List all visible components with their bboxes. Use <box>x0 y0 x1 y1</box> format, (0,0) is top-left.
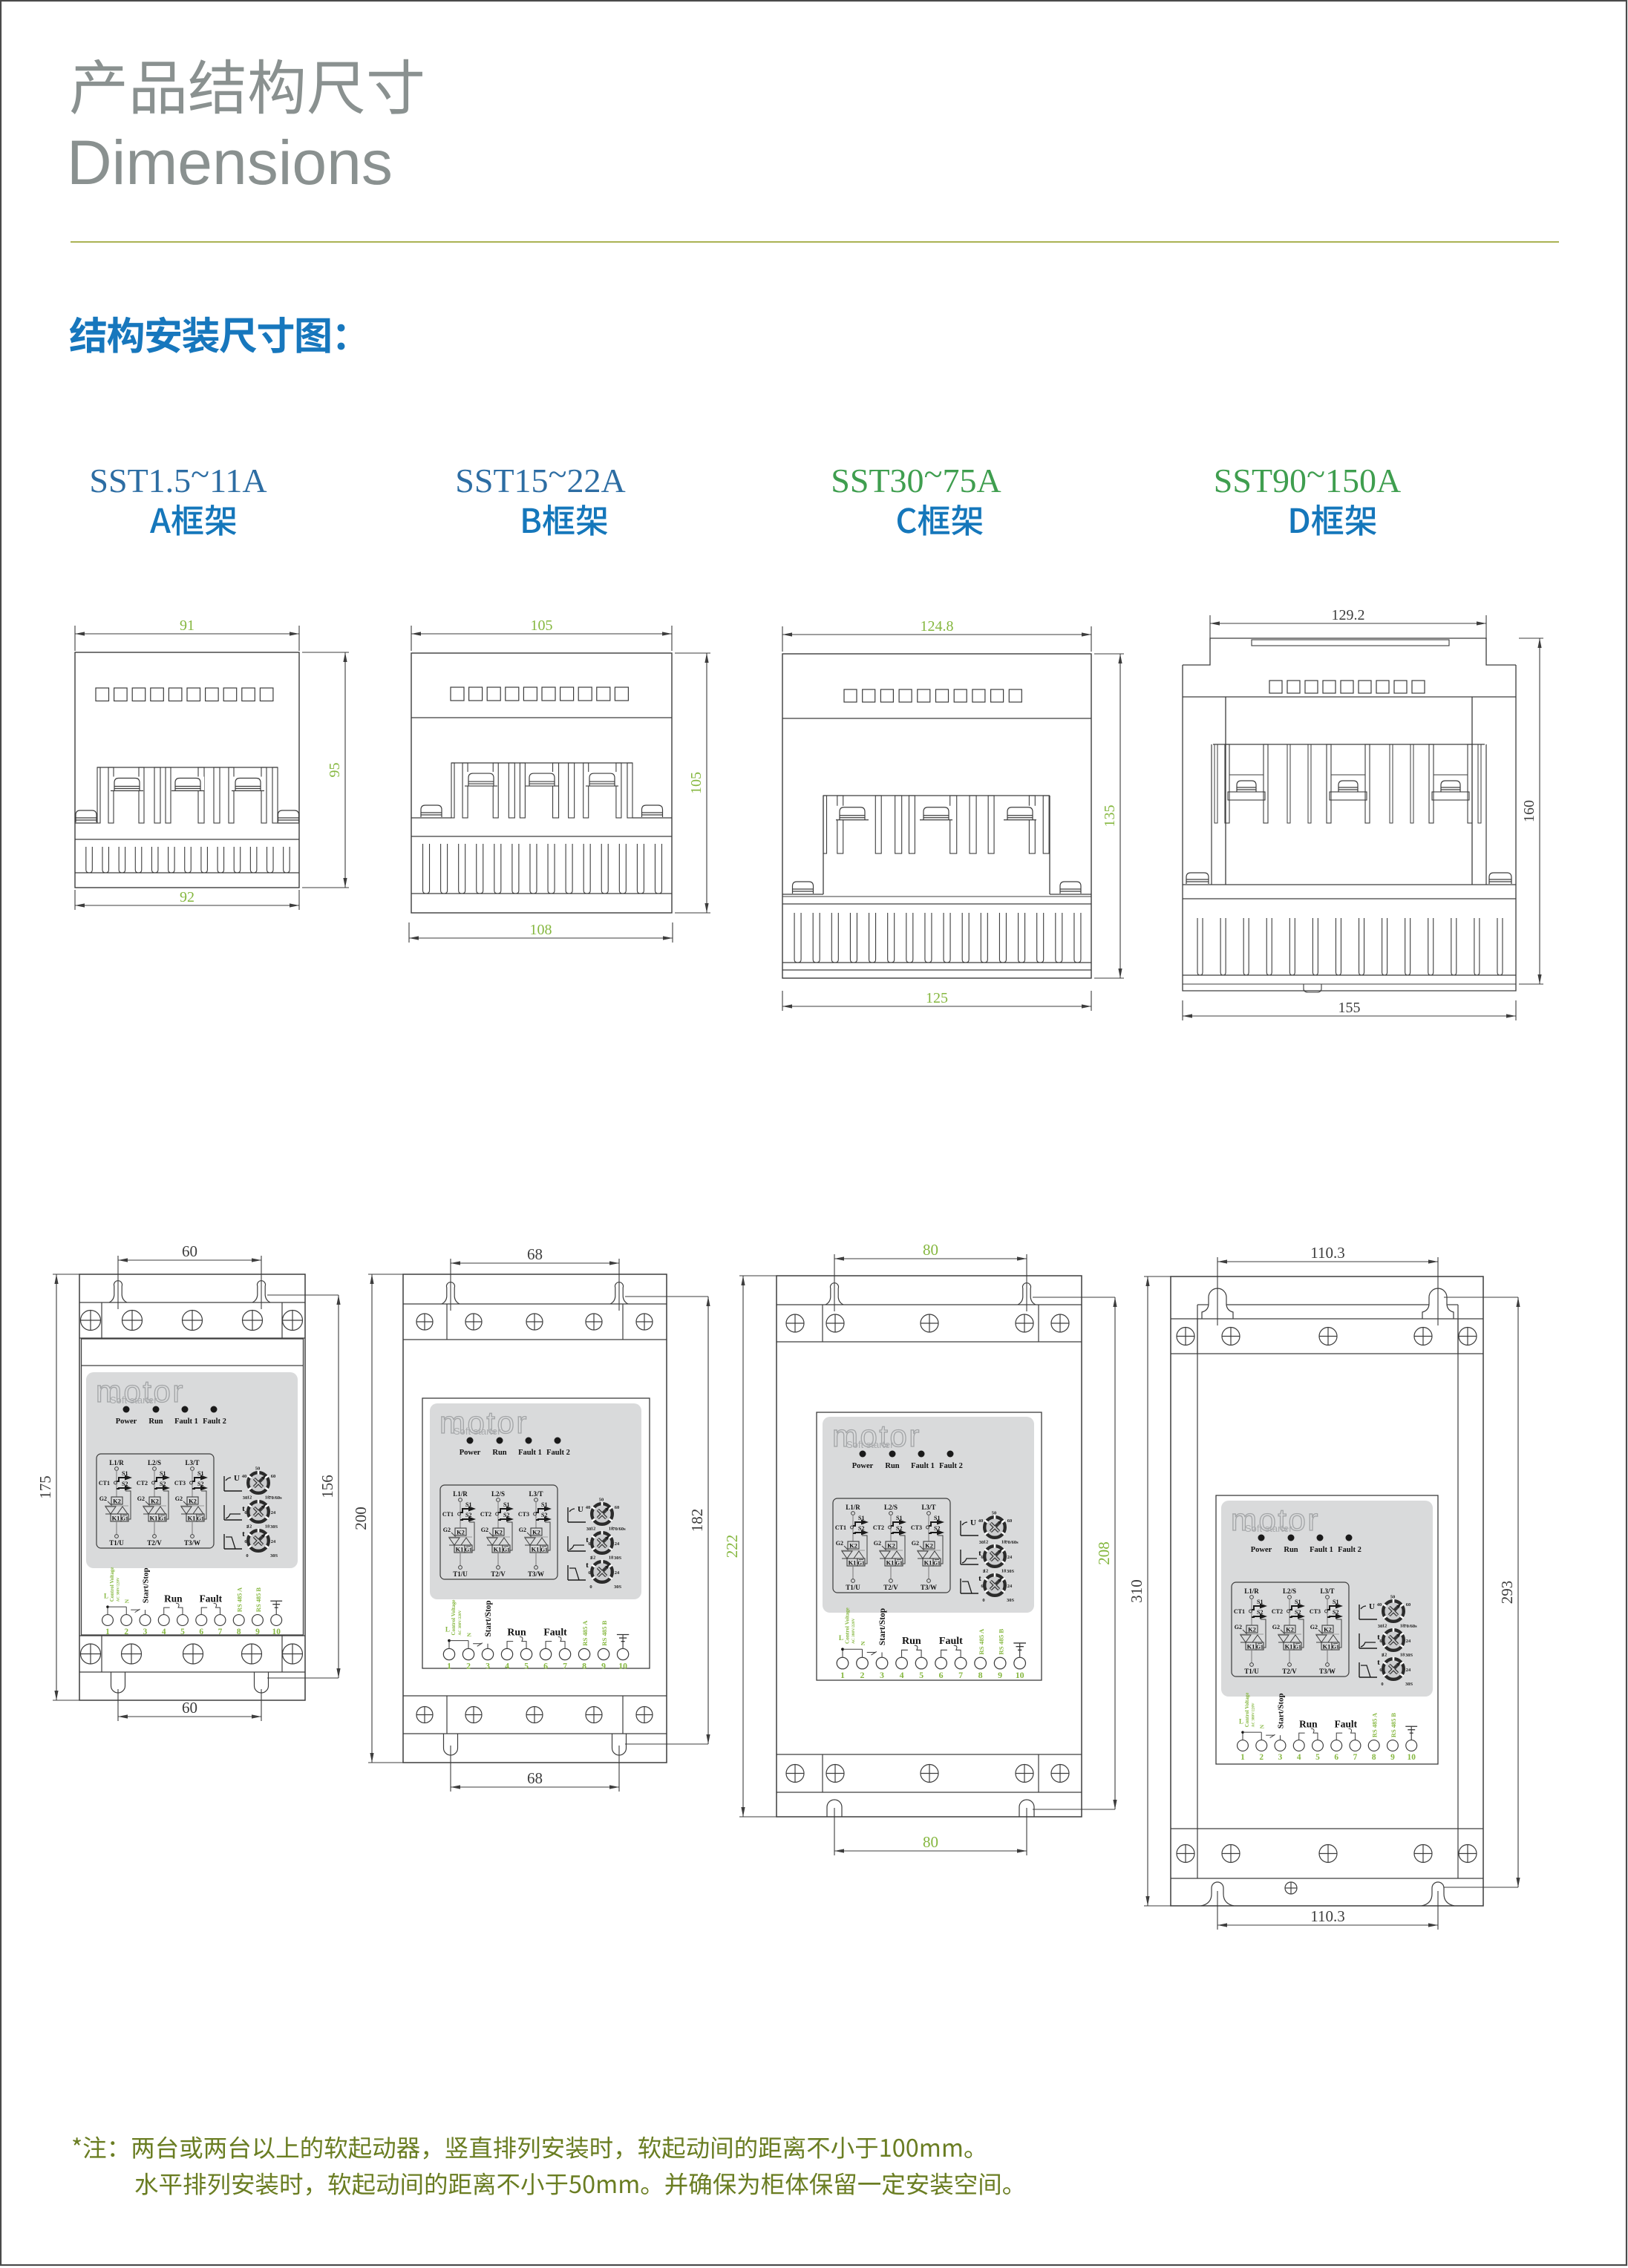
svg-text:SST1.5~11A: SST1.5~11A <box>89 455 267 499</box>
svg-text:60: 60 <box>182 1699 197 1717</box>
svg-text:105: 105 <box>688 772 705 794</box>
svg-text:95: 95 <box>327 763 343 778</box>
svg-text:108: 108 <box>530 922 552 938</box>
svg-text:68: 68 <box>527 1769 543 1787</box>
svg-text:105: 105 <box>531 617 553 634</box>
svg-text:68: 68 <box>527 1245 543 1263</box>
svg-text:110.3: 110.3 <box>1310 1907 1344 1925</box>
svg-text:80: 80 <box>923 1241 938 1259</box>
svg-text:92: 92 <box>180 889 194 905</box>
svg-text:222: 222 <box>723 1535 741 1559</box>
svg-text:156: 156 <box>318 1475 336 1498</box>
svg-text:91: 91 <box>180 617 194 634</box>
svg-text:60: 60 <box>182 1242 197 1260</box>
svg-text:SST30~75A: SST30~75A <box>831 455 1001 499</box>
svg-text:SST90~150A: SST90~150A <box>1214 455 1401 499</box>
svg-text:160: 160 <box>1521 800 1537 822</box>
svg-text:SST15~22A: SST15~22A <box>455 455 625 499</box>
svg-text:Dimensions: Dimensions <box>67 128 393 197</box>
svg-text:155: 155 <box>1338 1000 1361 1016</box>
svg-text:175: 175 <box>36 1475 54 1499</box>
svg-text:129.2: 129.2 <box>1332 607 1365 623</box>
svg-text:125: 125 <box>926 990 948 1006</box>
svg-text:208: 208 <box>1095 1541 1113 1565</box>
svg-text:200: 200 <box>352 1507 370 1530</box>
svg-text:80: 80 <box>923 1833 938 1851</box>
svg-text:135: 135 <box>1102 805 1118 827</box>
svg-text:310: 310 <box>1128 1579 1145 1603</box>
svg-text:293: 293 <box>1498 1581 1516 1605</box>
svg-text:110.3: 110.3 <box>1310 1244 1344 1262</box>
svg-text:124.8: 124.8 <box>921 618 954 635</box>
svg-text:182: 182 <box>688 1509 706 1533</box>
